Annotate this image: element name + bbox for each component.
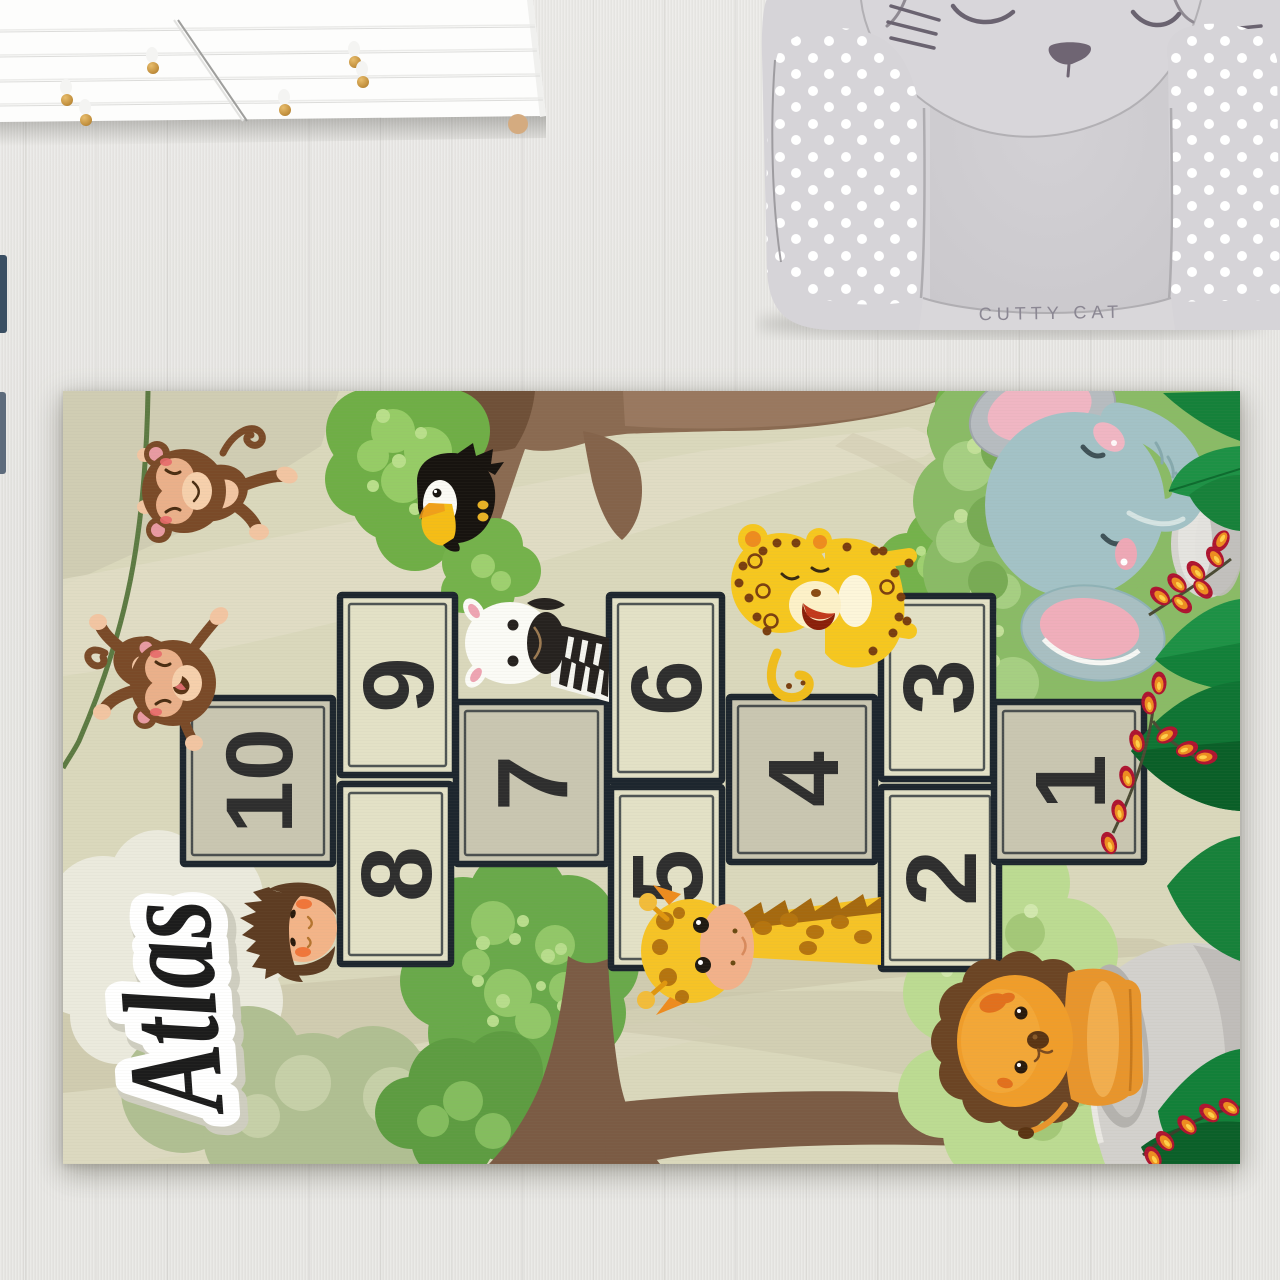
svg-text:CUTTY CAT: CUTTY CAT: [979, 302, 1124, 325]
